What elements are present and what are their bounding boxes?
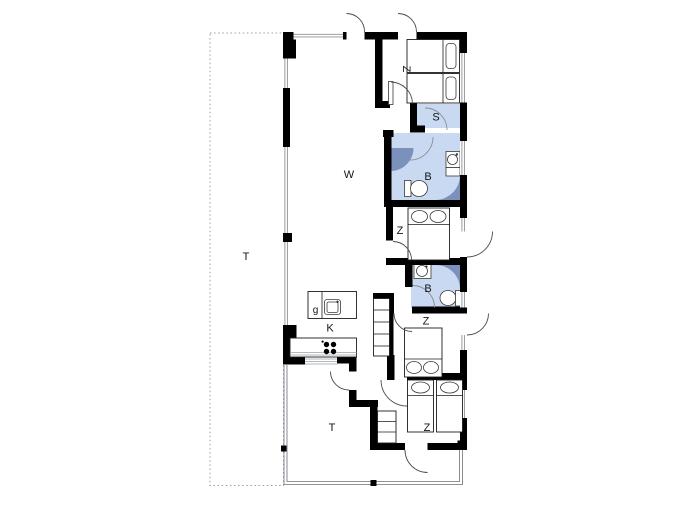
canvas-background [0,0,700,500]
floor-plan-drawing: T W K g Z S B Z B Z Z T [0,0,700,500]
terrace-post [371,480,377,486]
window [460,141,467,175]
pillow-icon [430,211,446,223]
pillow-icon [446,44,456,69]
single-bed [407,74,460,104]
label-bedroom-bottom: Z [424,422,431,434]
sink-tap-icon [336,301,338,303]
sink-tap-icon [425,265,427,267]
terrace-post [281,446,287,452]
double-bed [405,328,443,377]
window [460,335,467,350]
window [460,218,467,232]
label-bedroom-lower: Z [423,316,430,328]
window [294,32,344,40]
single-bed [437,380,463,432]
window [283,59,290,89]
label-bathroom-top: B [424,171,431,183]
pillow-icon [441,382,459,393]
window [283,147,290,233]
door-leaf [389,82,394,105]
pillow-icon [407,362,422,374]
label-kitchen: K [326,323,334,335]
label-sauna: S [432,112,439,124]
pillow-icon [446,77,456,100]
label-terrace-west: T [243,251,250,263]
label-bedroom-top: Z [400,66,412,73]
pillow-icon [412,211,428,223]
window [460,292,467,308]
window [283,242,290,325]
toilet-tank-icon [405,181,412,197]
pillow-icon [412,382,430,393]
window [460,53,467,103]
floor-plan-page: T W K g Z S B Z B Z Z T [0,0,700,500]
label-bathroom-lower: B [424,283,431,295]
label-terrace-south: T [329,422,336,434]
kitchen-sink-bowl-icon [327,302,338,313]
toilet-bowl-icon [440,291,456,306]
double-bed [408,208,450,260]
single-bed [407,40,460,73]
label-bedroom-middle: Z [397,225,404,237]
sink-tap-icon [456,153,458,155]
pillow-icon [424,362,439,374]
sink-counter-icon [446,168,460,177]
sink-bowl-icon [448,155,458,165]
wardrobe-shelves [374,299,390,357]
wardrobe-shelves [378,411,397,443]
label-living-room: W [344,169,355,181]
label-kitchen-island: g [313,305,319,316]
